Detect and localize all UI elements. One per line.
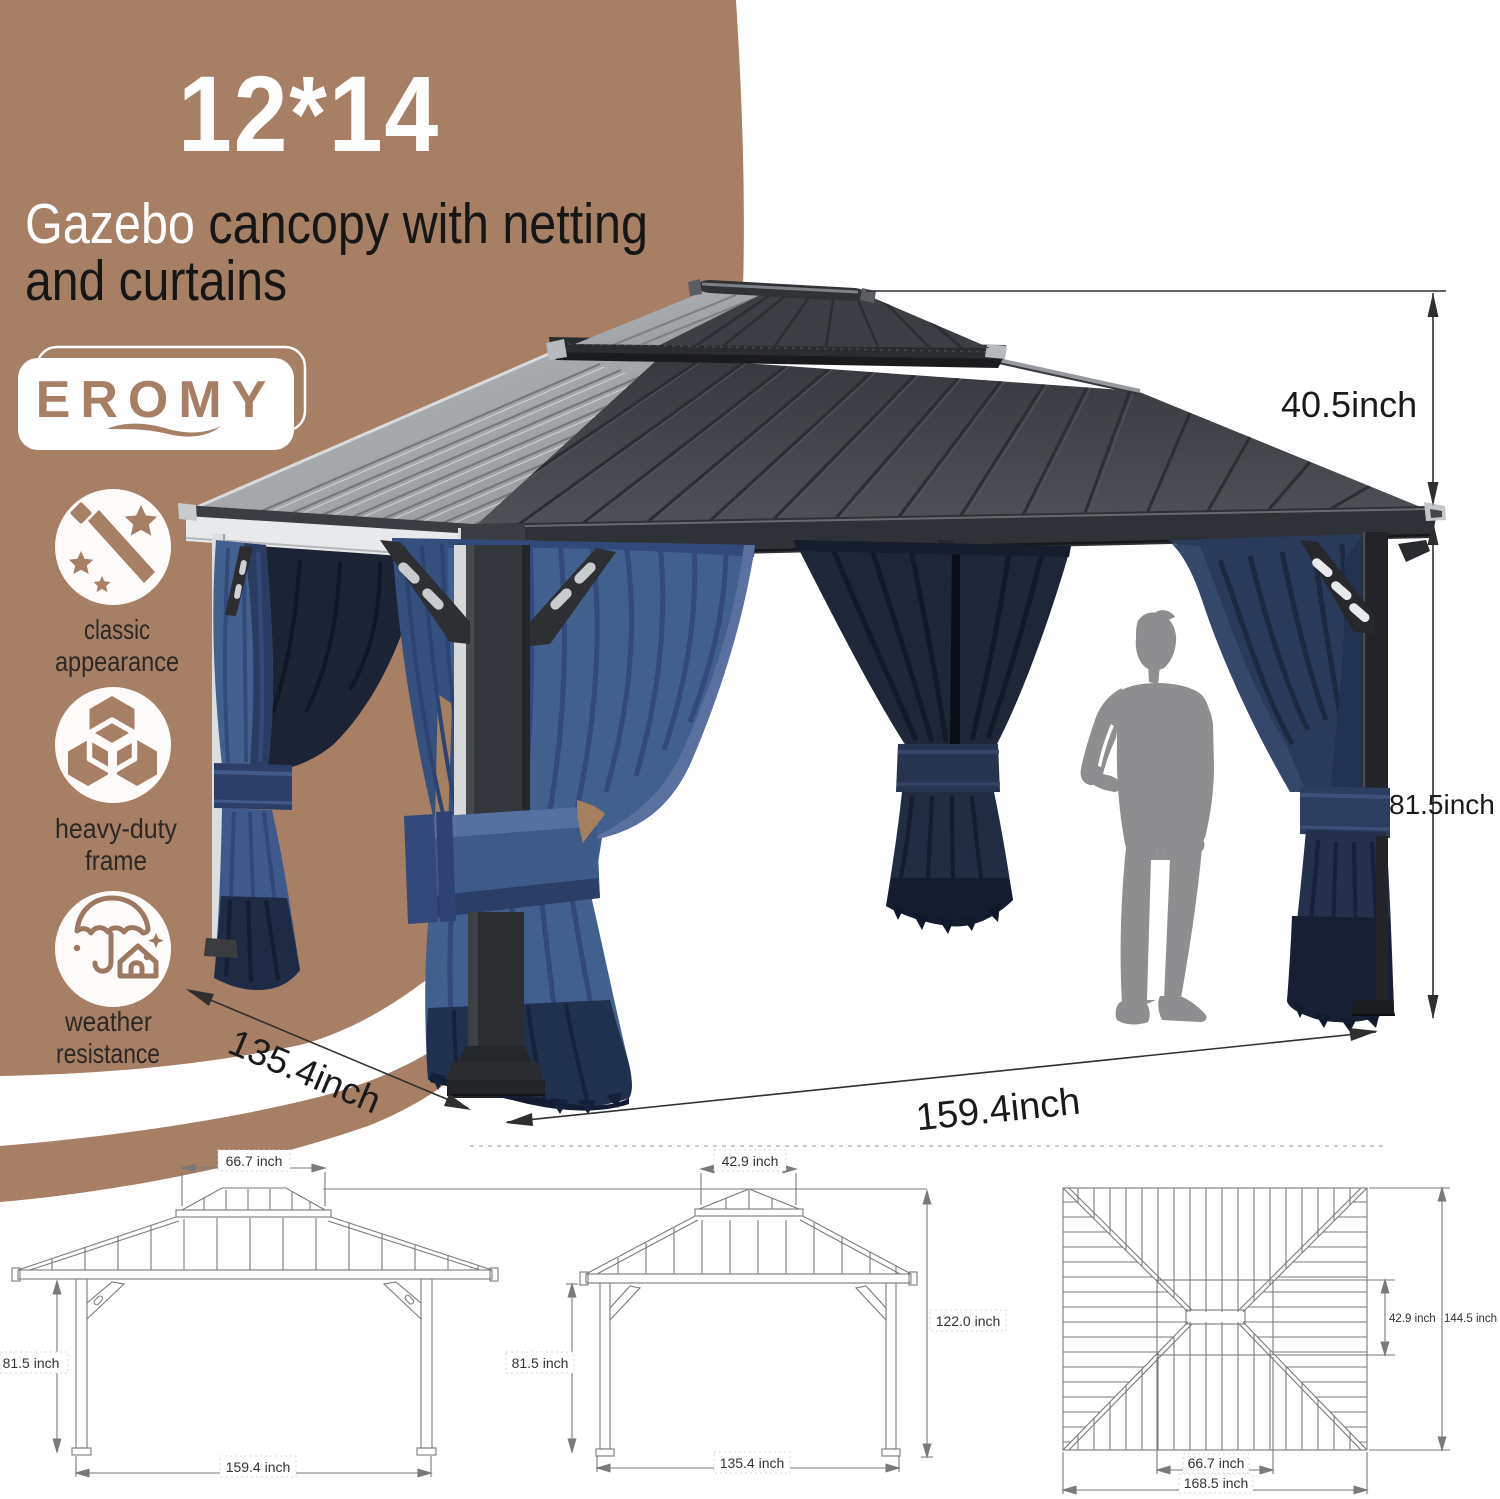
svg-text:Gazebo cancopy with netting: Gazebo cancopy with netting	[25, 192, 648, 256]
svg-text:12*14: 12*14	[178, 53, 440, 174]
svg-text:122.0 inch: 122.0 inch	[936, 1313, 1001, 1329]
svg-text:144.5 inch: 144.5 inch	[1444, 1313, 1497, 1325]
svg-text:40.5inch: 40.5inch	[1281, 384, 1417, 425]
svg-text:81.5inch: 81.5inch	[1389, 789, 1495, 820]
svg-text:appearance: appearance	[55, 646, 179, 677]
svg-text:66.7 inch: 66.7 inch	[1188, 1455, 1245, 1471]
svg-text:66.7 inch: 66.7 inch	[226, 1153, 283, 1169]
svg-text:weather: weather	[64, 1006, 152, 1037]
svg-text:81.5 inch: 81.5 inch	[512, 1355, 569, 1371]
svg-text:81.5 inch: 81.5 inch	[3, 1355, 60, 1371]
svg-text:42.9 inch: 42.9 inch	[1389, 1313, 1436, 1325]
svg-text:159.4 inch: 159.4 inch	[226, 1459, 291, 1475]
svg-text:heavy-duty: heavy-duty	[55, 813, 177, 844]
svg-text:and curtains: and curtains	[25, 249, 287, 313]
svg-text:classic: classic	[84, 614, 150, 645]
svg-text:resistance: resistance	[56, 1038, 160, 1069]
svg-text:168.5 inch: 168.5 inch	[1184, 1475, 1249, 1491]
svg-text:EROMY: EROMY	[36, 371, 277, 429]
svg-text:42.9 inch: 42.9 inch	[722, 1153, 779, 1169]
svg-text:135.4 inch: 135.4 inch	[720, 1455, 785, 1471]
svg-text:frame: frame	[85, 845, 147, 876]
